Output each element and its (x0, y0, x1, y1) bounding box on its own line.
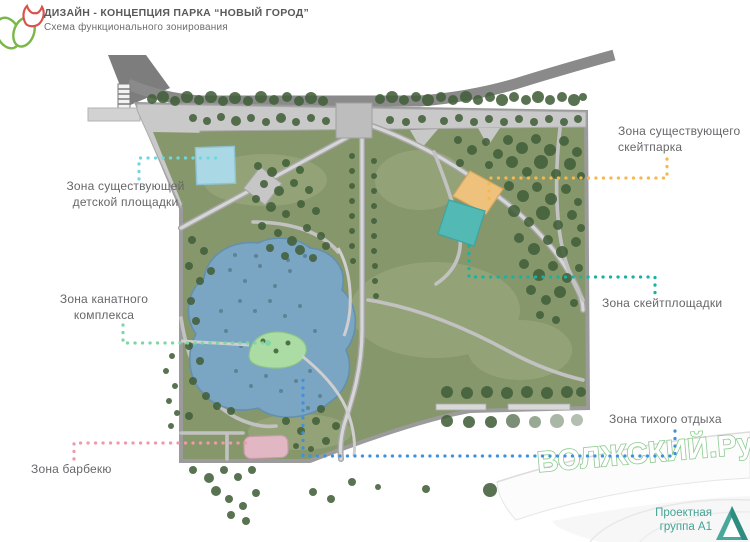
header: ДИЗАЙН - КОНЦЕПЦИЯ ПАРКА “НОВЫЙ ГОРОД” С… (44, 7, 309, 33)
tulip-logo (0, 2, 46, 54)
zone-label-quiet: Зона тихого отдыха (609, 412, 739, 428)
zone-label-bbq: Зона барбекю (31, 462, 151, 478)
zone-label-rope: Зона канатного комплекса (44, 292, 164, 324)
page-subtitle: Схема функционального зонирования (44, 22, 309, 33)
entry-path (88, 108, 140, 121)
zone-label-skatepark-existing: Зона существующего скейтпарка (618, 124, 750, 156)
park-plan-map: ВОЛЖСКИЙ.Ру (0, 0, 750, 542)
pond (188, 238, 355, 417)
tulip-flower (23, 6, 43, 26)
leader-rope-endpoint (265, 340, 271, 346)
project-group-caption: Проектная группа А1 (612, 506, 712, 535)
page-title: ДИЗАЙН - КОНЦЕПЦИЯ ПАРКА “НОВЫЙ ГОРОД” (44, 7, 309, 19)
zone-label-skate-area: Зона скейтплощадки (602, 296, 747, 312)
zone-bbq-rect (244, 435, 289, 459)
page: ДИЗАЙН - КОНЦЕПЦИЯ ПАРКА “НОВЫЙ ГОРОД” С… (0, 0, 750, 542)
bench-strip (436, 404, 486, 410)
bench-strip (508, 404, 570, 410)
project-group-line2: группа А1 (612, 520, 712, 534)
project-group-line1: Проектная (612, 506, 712, 520)
central-plaza (336, 103, 372, 138)
zone-label-playground: Зона существующей детской площадки (38, 179, 213, 211)
a1-logo (712, 504, 750, 542)
